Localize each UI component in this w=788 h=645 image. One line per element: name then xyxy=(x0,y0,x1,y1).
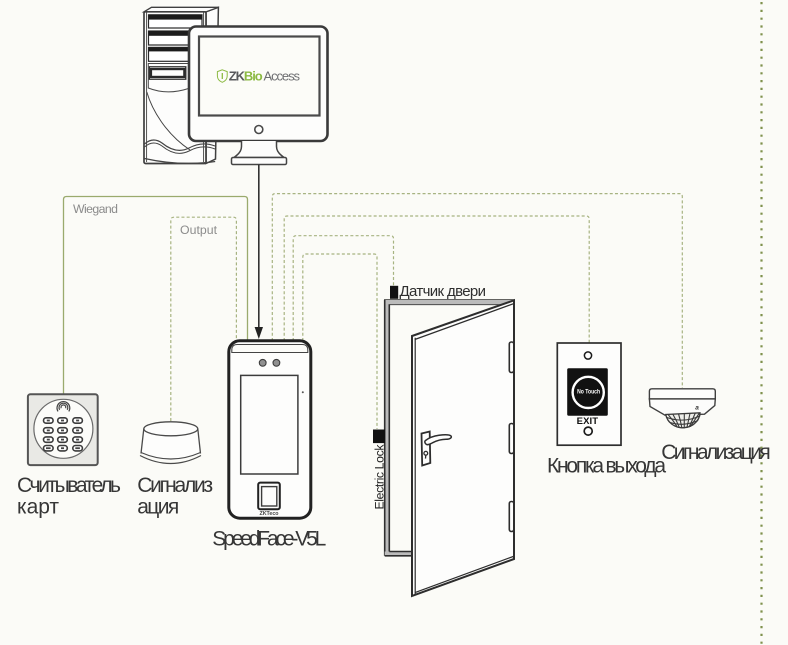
svg-text:Датчик двери: Датчик двери xyxy=(400,283,487,300)
svg-text:ация: ация xyxy=(137,496,179,519)
svg-text:SpeedFace-V5L: SpeedFace-V5L xyxy=(212,528,326,551)
svg-text:Output: Output xyxy=(180,223,218,237)
svg-text:Считыватель: Считыватель xyxy=(17,474,121,497)
svg-text:a: a xyxy=(695,404,699,411)
svg-text:ZKBio Access: ZKBio Access xyxy=(229,68,301,83)
svg-text:Electric Lock: Electric Lock xyxy=(373,444,387,510)
svg-text:EXIT: EXIT xyxy=(577,416,599,427)
svg-text:Wiegand: Wiegand xyxy=(73,202,118,216)
svg-text:карт: карт xyxy=(17,496,59,519)
svg-text:Кнопка выхода: Кнопка выхода xyxy=(547,455,666,478)
svg-text:Сигнализация: Сигнализация xyxy=(661,441,771,464)
svg-text:ZKTeco: ZKTeco xyxy=(260,511,279,517)
svg-text:No Touch: No Touch xyxy=(577,389,600,395)
svg-text:Сигнализ: Сигнализ xyxy=(137,474,213,497)
